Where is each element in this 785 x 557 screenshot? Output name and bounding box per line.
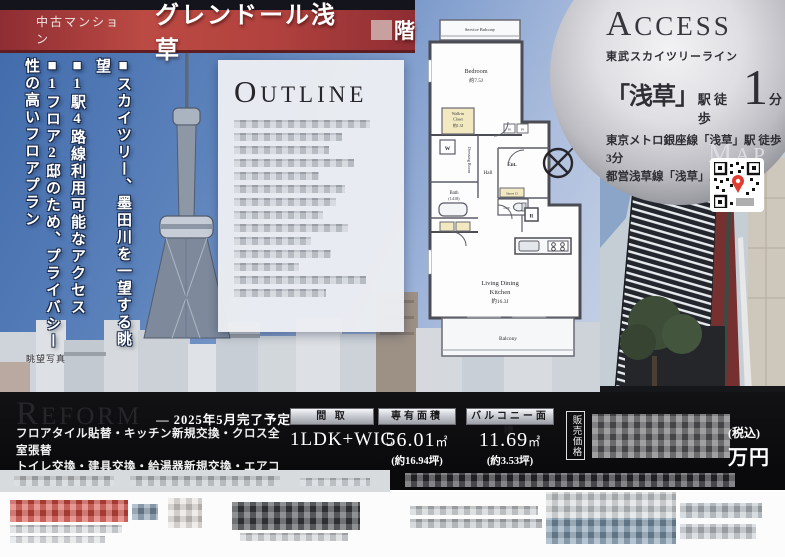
area-label: 専有面積: [378, 408, 456, 425]
area-tsubo: (約16.94坪): [378, 453, 456, 468]
spec-balcony: バルコニー面積 11.69㎡ (約3.53坪): [466, 408, 554, 468]
qr-pattern: [714, 162, 760, 208]
map-qr-code: [710, 158, 764, 212]
price-unit: 万円: [728, 441, 770, 470]
ldk-label-1: Living Dining: [481, 280, 519, 287]
bedroom-label: Bedroom: [464, 68, 487, 75]
selling-point-2: ■1駅4路線利用可能なアクセス: [67, 58, 88, 350]
washer-label: W: [445, 146, 451, 152]
area-value: 56.01㎡: [378, 429, 456, 452]
flyer-page: ■スカイツリー、墨田川を一望する眺望 ■1駅4路線利用可能なアクセス ■1フロア…: [0, 0, 785, 557]
walk-minutes-unit: 分: [769, 89, 782, 108]
ldk-label-2: Kitchen: [490, 289, 512, 296]
ps-label-1: PS: [508, 128, 512, 132]
footer-dark-censored: [405, 473, 735, 487]
floor-number-censored: [371, 20, 392, 40]
outline-title: Outline: [234, 74, 388, 110]
outline-box: Outline: [218, 60, 404, 332]
layout-label: 間 取: [290, 408, 374, 425]
bath-size: (1418): [448, 196, 460, 201]
tax-note: (税込): [728, 424, 770, 441]
area-unit: ㎡: [435, 435, 448, 449]
outline-censored-text: [234, 120, 388, 297]
ldk-size: 約16.3J: [492, 297, 509, 305]
wic-label-1: Walk-in: [452, 112, 464, 116]
spec-layout: 間 取 1LDK+WIC: [290, 408, 374, 451]
walk-minutes: 1: [743, 65, 768, 110]
service-balcony-label: Service Balcony: [465, 27, 496, 32]
dressing-room-label: Dressing Room: [467, 147, 472, 174]
lavatory-label: Lav.: [503, 205, 510, 210]
access-title: Access: [606, 4, 782, 44]
price-censored: [592, 414, 730, 458]
reform-detail-line-1: フロアタイル貼替・キッチン新規交換・クロス全室張替: [16, 426, 288, 459]
footer-seal-censored: [168, 498, 202, 528]
footer-logo-censored: [10, 500, 128, 522]
balcony-area-value: 11.69㎡: [466, 429, 554, 452]
footer-company-censored: [232, 502, 360, 530]
wic-label-2: Closet: [453, 118, 464, 122]
price-label: 販売価格: [566, 411, 585, 460]
photo-caption: 眺望写真: [26, 352, 66, 365]
wic-size: 約1.3J: [453, 123, 464, 128]
ps-label-2: PS: [521, 128, 525, 132]
selling-point-1: ■スカイツリー、墨田川を一望する眺望: [92, 58, 134, 350]
property-title: グレンドール浅草: [155, 0, 357, 65]
title-banner: 中古マンション グレンドール浅草 階: [0, 10, 415, 53]
spec-area: 専有面積 56.01㎡ (約16.94坪): [378, 408, 456, 468]
bedroom-size: 約7.5J: [469, 76, 483, 84]
selling-points: ■スカイツリー、墨田川を一望する眺望 ■1駅4路線利用可能なアクセス ■1フロア…: [20, 58, 138, 350]
property-type-label: 中古マンション: [36, 13, 131, 47]
layout-value: 1LDK+WIC: [290, 429, 374, 451]
station-name: 「浅草」: [606, 76, 696, 111]
entrance-label: Ent.: [507, 162, 517, 168]
footer-gray-strip: [0, 470, 390, 492]
shoes-closet-label: Shoes Cl: [506, 192, 518, 196]
balcony-area-unit: ㎡: [528, 435, 541, 449]
price-unit-block: (税込) 万円: [728, 424, 770, 470]
access-main-line: 「浅草」 駅 徒歩 1 分: [606, 65, 782, 127]
balcony-area-tsubo: (約3.53坪): [466, 453, 554, 468]
balcony-label: Balcony: [499, 336, 517, 342]
hall-label: Hall: [484, 170, 493, 176]
selling-point-3: ■1フロア2邸のため、プライバシー性の高いフロアプラン: [21, 58, 63, 350]
footer-banner-censored: [546, 518, 676, 544]
balcony-area-label: バルコニー面積: [466, 408, 554, 425]
station-suffix: 駅 徒歩: [698, 89, 739, 127]
footer-area: [0, 492, 785, 557]
